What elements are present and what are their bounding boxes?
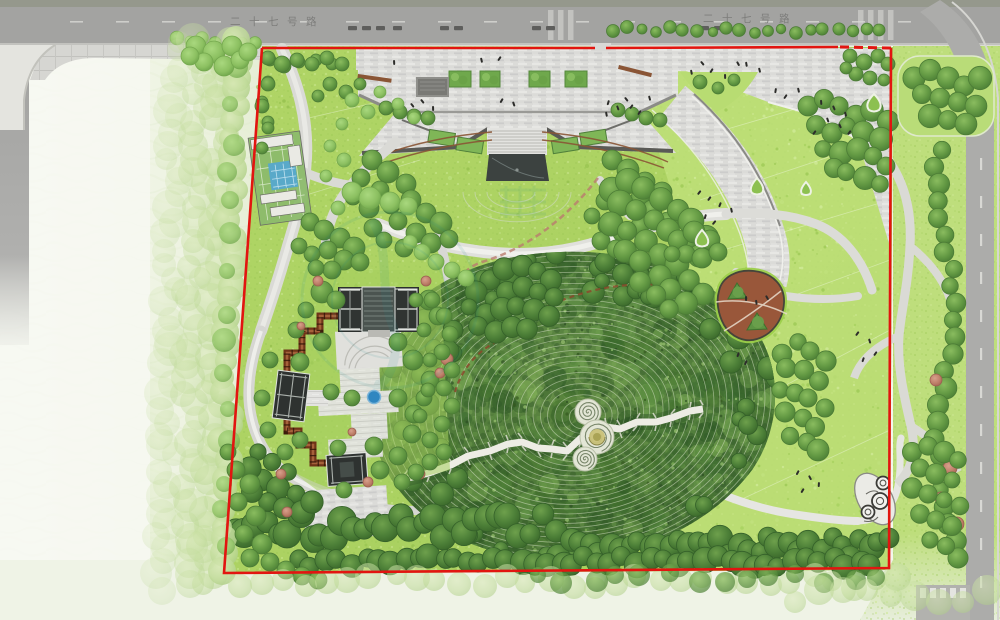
svg-text:二十七号路: 二十七号路 xyxy=(230,15,325,28)
svg-text:二十七号路: 二十七号路 xyxy=(703,12,798,25)
